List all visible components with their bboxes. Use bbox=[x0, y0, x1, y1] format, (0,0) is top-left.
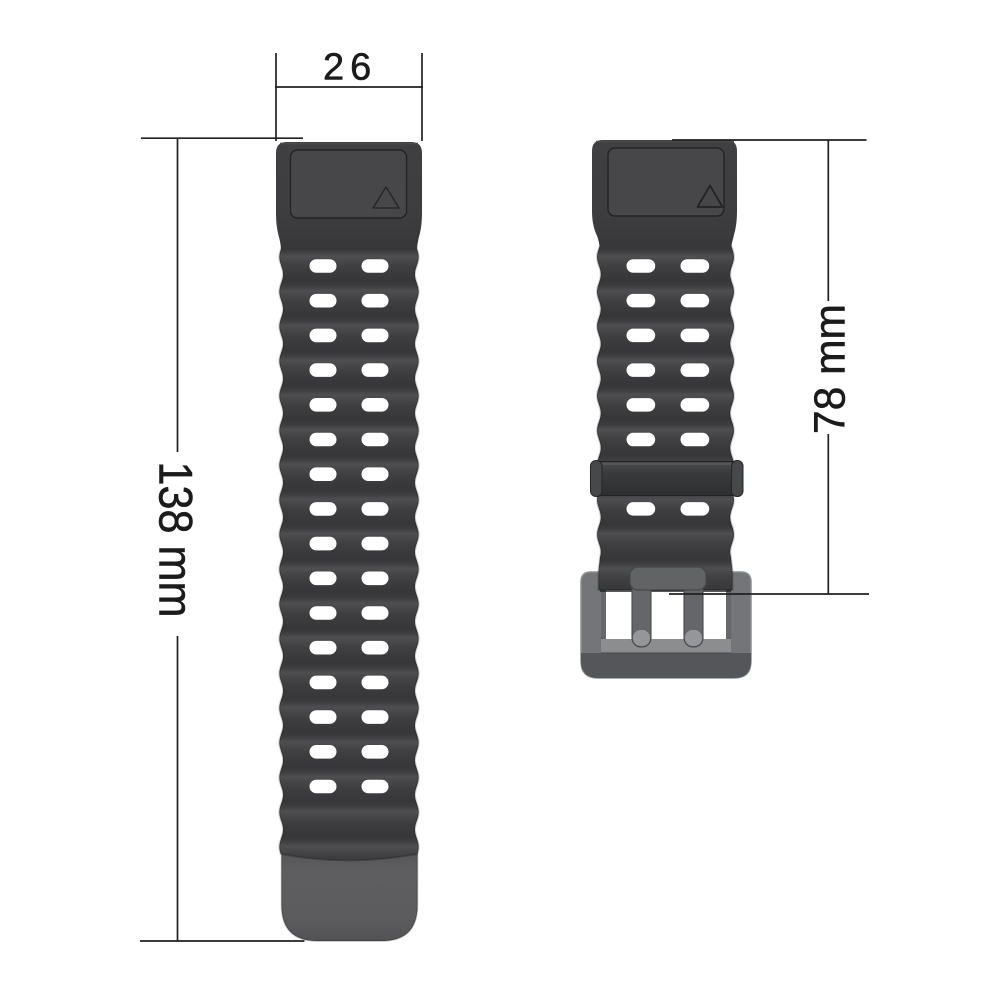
svg-text:26: 26 bbox=[323, 47, 377, 89]
svg-text:78 mm: 78 mm bbox=[807, 304, 855, 434]
svg-text:138 mm: 138 mm bbox=[149, 462, 202, 618]
